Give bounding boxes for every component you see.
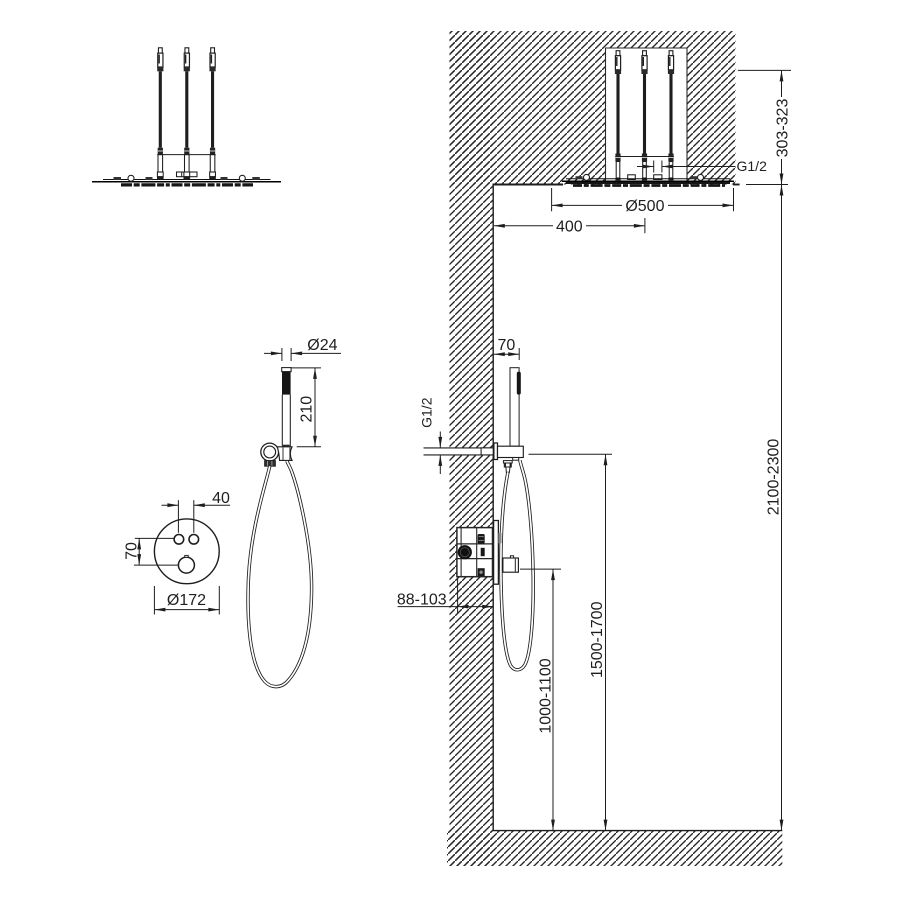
svg-text:70: 70 bbox=[124, 542, 141, 560]
svg-text:400: 400 bbox=[556, 218, 583, 235]
svg-text:88-103: 88-103 bbox=[397, 591, 447, 608]
svg-text:1000-1100: 1000-1100 bbox=[537, 658, 554, 733]
svg-text:40: 40 bbox=[212, 490, 230, 507]
svg-text:Ø172: Ø172 bbox=[167, 592, 206, 609]
svg-text:303-323: 303-323 bbox=[774, 99, 791, 158]
svg-text:Ø24: Ø24 bbox=[307, 337, 337, 354]
svg-text:70: 70 bbox=[498, 337, 516, 354]
svg-text:Ø500: Ø500 bbox=[625, 198, 664, 215]
svg-text:G1/2: G1/2 bbox=[737, 158, 768, 174]
svg-text:210: 210 bbox=[298, 396, 315, 423]
svg-text:1500-1700: 1500-1700 bbox=[589, 601, 606, 678]
svg-text:G1/2: G1/2 bbox=[418, 397, 434, 428]
svg-text:2100-2300: 2100-2300 bbox=[765, 439, 782, 516]
